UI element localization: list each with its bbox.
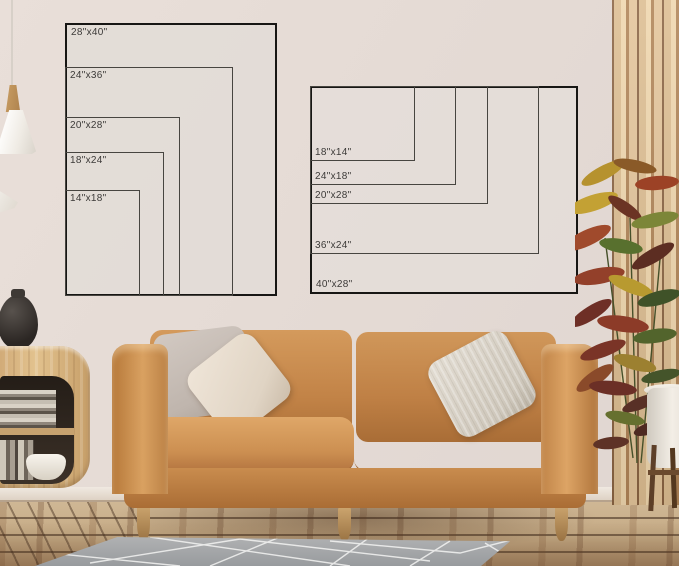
charcoal-vase <box>0 295 38 349</box>
size-label-24x18: 24"x18" <box>315 171 351 182</box>
cabinet-opening <box>0 376 74 484</box>
size-label-36x24: 36"x24" <box>315 240 351 251</box>
sofa-seat-cushion-left <box>140 417 354 473</box>
size-label-20x28-landscape: 20"x28" <box>315 190 351 201</box>
plant-stand-rail <box>648 470 679 475</box>
sofa-leg-center <box>338 505 351 541</box>
sofa-leg-right <box>555 503 568 541</box>
wood-side-cabinet <box>0 346 90 488</box>
white-bowl <box>26 454 66 480</box>
portrait-size-chart: 28"x40" 24"x36" 20"x28" 18"x24" 14"x18" <box>65 23 277 296</box>
cabinet-shelf <box>0 428 74 435</box>
size-label-40x28: 40"x28" <box>316 279 352 290</box>
sofa-seat-cushion-right <box>354 417 564 473</box>
size-label-24x36: 24"x36" <box>70 70 106 81</box>
sofa-leg-left <box>137 503 150 541</box>
size-rect-18x14: 18"x14" <box>310 86 415 161</box>
size-label-18x24: 18"x24" <box>70 155 106 166</box>
sofa-base <box>124 468 586 508</box>
vase-neck <box>11 289 25 298</box>
size-label-14x18: 14"x18" <box>70 193 106 204</box>
landscape-size-chart: 40"x28" 36"x24" 20"x28" 24"x18" 18"x14" <box>310 86 578 294</box>
size-label-20x28: 20"x28" <box>70 120 106 131</box>
size-rect-14x18: 14"x18" <box>65 190 140 296</box>
size-label-18x14: 18"x14" <box>315 147 351 158</box>
pendant-cord <box>11 0 13 88</box>
living-room-scene: 28"x40" 24"x36" 20"x28" 18"x24" 14"x18" … <box>0 0 679 566</box>
stacked-books <box>0 390 56 428</box>
size-label-28x40: 28"x40" <box>71 27 107 38</box>
sofa-arm-left <box>112 344 168 494</box>
